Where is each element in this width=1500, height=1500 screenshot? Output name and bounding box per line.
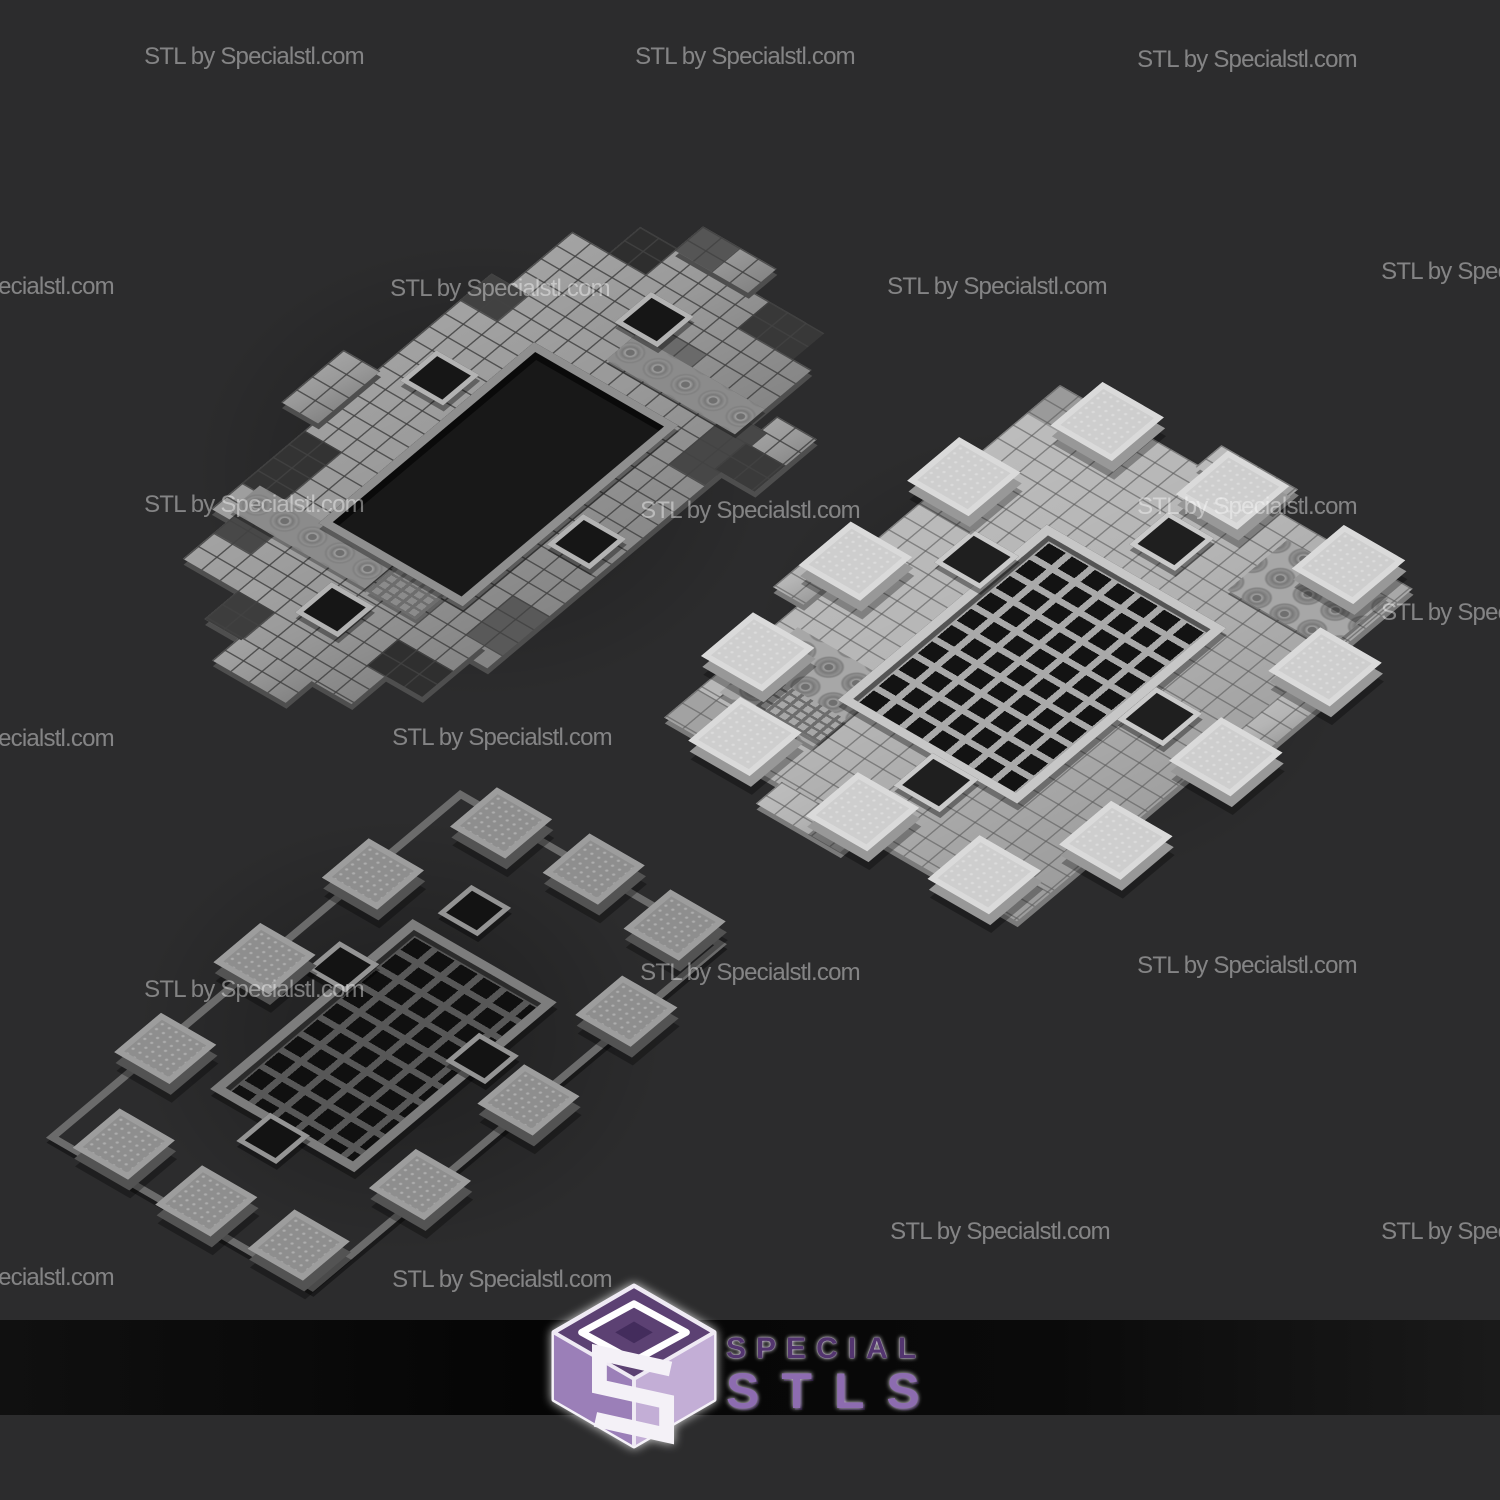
watermark-text: STL by Specialstl.com: [1381, 1218, 1500, 1246]
watermark-text: STL by Specialstl.com: [0, 273, 114, 301]
watermark-text: STL by Specialstl.com: [640, 959, 860, 987]
specialstls-wordmark: SPECIAL STLS: [726, 1334, 942, 1416]
specialstls-logo: SPECIAL STLS: [540, 1278, 1010, 1458]
watermark-text: STL by Specialstl.com: [890, 1218, 1110, 1246]
watermark-text: STL by Specialstl.com: [1381, 599, 1500, 627]
logo-text-special: SPECIAL: [726, 1334, 942, 1364]
watermark-text: STL by Specialstl.com: [1137, 952, 1357, 980]
watermark-text: STL by Specialstl.com: [144, 43, 364, 71]
watermark-text: STL by Specialstl.com: [1137, 493, 1357, 521]
watermark-text: STL by Specialstl.com: [0, 1264, 114, 1292]
watermark-text: STL by Specialstl.com: [887, 273, 1107, 301]
watermark-text: STL by Specialstl.com: [635, 43, 855, 71]
watermark-text: STL by Specialstl.com: [392, 1266, 612, 1294]
watermark-text: STL by Specialstl.com: [144, 976, 364, 1004]
watermark-text: STL by Specialstl.com: [1381, 258, 1500, 286]
logo-text-stls: STLS: [726, 1366, 942, 1416]
watermark-text: STL by Specialstl.com: [144, 491, 364, 519]
watermark-text: STL by Specialstl.com: [1137, 46, 1357, 74]
specialstls-cube-icon: [550, 1282, 718, 1450]
watermark-text: STL by Specialstl.com: [640, 497, 860, 525]
product-render-image: STL by Specialstl.comSTL by Specialstl.c…: [0, 0, 1500, 1500]
watermark-text: STL by Specialstl.com: [0, 725, 114, 753]
watermark-text: STL by Specialstl.com: [390, 275, 610, 303]
watermark-text: STL by Specialstl.com: [392, 724, 612, 752]
